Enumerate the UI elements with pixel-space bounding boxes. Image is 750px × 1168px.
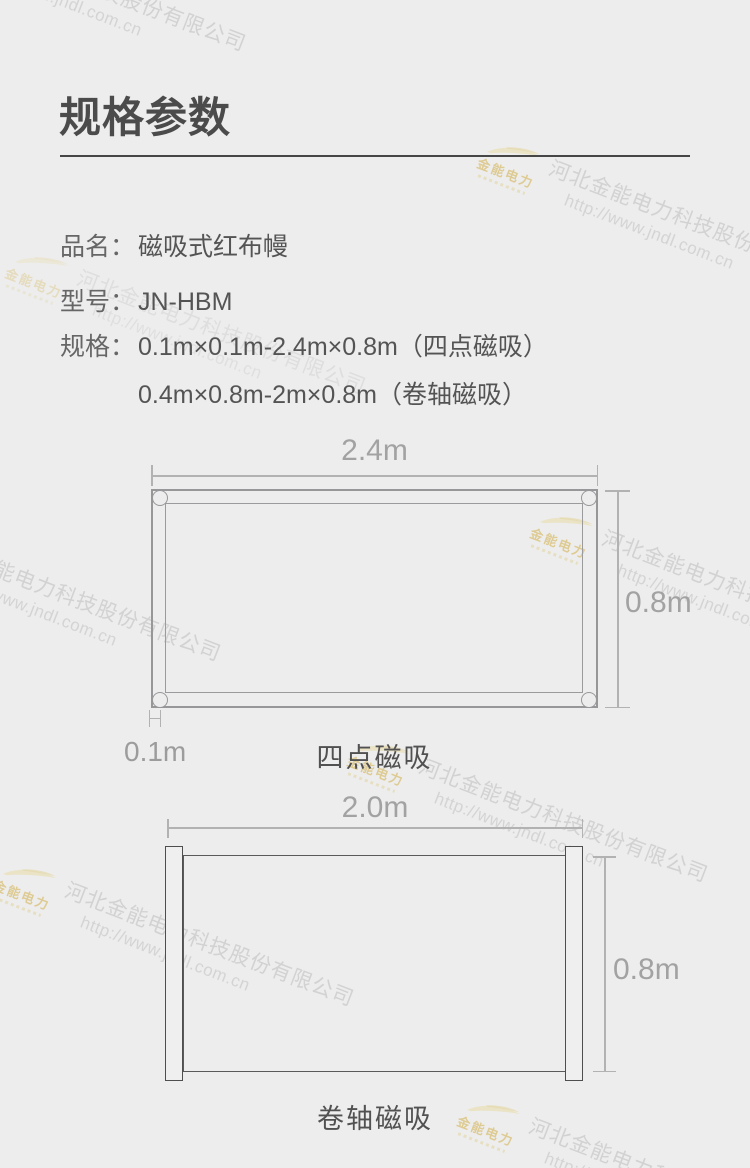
product-row-name: 品名：磁吸式红布幔	[60, 227, 288, 263]
watermark-url: http://www.jndl.com.cn	[561, 191, 750, 311]
title-divider	[60, 155, 690, 157]
diagram2-width-label: 2.0m	[167, 791, 583, 825]
field-label: 规格：	[60, 327, 138, 363]
diagram2-width-dim-line	[167, 827, 583, 829]
product-row-spec-1: 规格：0.1m×0.1m-2.4m×0.8m（四点磁吸）	[60, 327, 548, 363]
field-value: 0.4m×0.8m-2m×0.8m（卷轴磁吸）	[138, 381, 527, 409]
diagram1-caption: 四点磁吸	[151, 736, 598, 775]
watermark-company: 河北金能电力科技股份有限公司	[0, 0, 251, 58]
watermark-logo-subtext	[0, 896, 41, 917]
diagram1-height-label: 0.8m	[625, 586, 692, 620]
diagram1-width-dim-tick-right	[597, 465, 599, 486]
diagram2-width-dim-tick-right	[582, 819, 584, 838]
field-value: 0.1m×0.1m-2.4m×0.8m（四点磁吸）	[138, 333, 548, 361]
page-title: 规格参数	[59, 84, 231, 145]
watermark-logo-text: 金能电力	[475, 153, 538, 192]
diagram2-width-dim-tick-left	[167, 819, 169, 838]
diagram1-width-dim-tick-left	[151, 465, 153, 486]
field-label: 型号：	[60, 282, 138, 318]
company-logo-icon: 金能电力	[0, 856, 60, 919]
watermark-url: http://www.jndl.com.cn	[541, 1149, 750, 1168]
watermark-logo-subtext	[477, 174, 525, 195]
spec-page: 金能电力 河北金能电力科技股份有限公司 http://www.jndl.com.…	[0, 0, 750, 1168]
watermark-logo-subtext	[5, 284, 53, 305]
diagram1-inner-cloth	[165, 503, 583, 693]
diagram1-width-label: 2.4m	[151, 434, 598, 468]
diagram2-height-label: 0.8m	[613, 953, 680, 987]
diagram1-height-dim-line	[617, 490, 619, 708]
product-row-model: 型号：JN-HBM	[60, 282, 232, 318]
watermark-url: http://www.jndl.com.cn	[614, 561, 750, 681]
diagram2-roller-right	[565, 846, 583, 1081]
magnet-point-bottom-left	[152, 692, 168, 708]
product-row-spec-2: 0.4m×0.8m-2m×0.8m（卷轴磁吸）	[60, 375, 527, 411]
diagram1-height-dim-tick-top	[605, 490, 630, 492]
diagram2-caption: 卷轴磁吸	[167, 1097, 583, 1136]
watermark-logo-text: 金能电力	[3, 263, 66, 302]
diagram2-roller-left	[165, 846, 183, 1081]
magnet-point-bottom-right	[581, 692, 597, 708]
diagram1-height-dim-tick-bottom	[605, 707, 630, 709]
field-value: 磁吸式红布幔	[138, 233, 288, 261]
diagram2-height-dim-tick-bottom	[593, 1071, 616, 1073]
diagram1-corner-dim-line	[149, 718, 161, 719]
field-label: 品名：	[60, 227, 138, 263]
field-value: JN-HBM	[138, 288, 232, 316]
diagram2-height-dim-tick-top	[593, 856, 616, 858]
magnet-point-top-right	[581, 490, 597, 506]
watermark-logo-text: 金能电力	[0, 875, 53, 914]
company-logo-icon: 金能电力	[474, 134, 544, 197]
diagram2-height-dim-line	[604, 857, 606, 1072]
diagram1-width-dim-line	[151, 475, 598, 477]
watermark-url: http://www.jndl.com.cn	[0, 0, 240, 77]
watermark-company: 河北金能电力科技股份有限公司	[545, 152, 750, 290]
watermark: 金能电力 河北金能电力科技股份有限公司 http://www.jndl.com.…	[0, 0, 251, 77]
diagram2-cloth	[183, 855, 567, 1072]
magnet-point-top-left	[152, 490, 168, 506]
watermark-logo-subtext	[347, 772, 395, 793]
